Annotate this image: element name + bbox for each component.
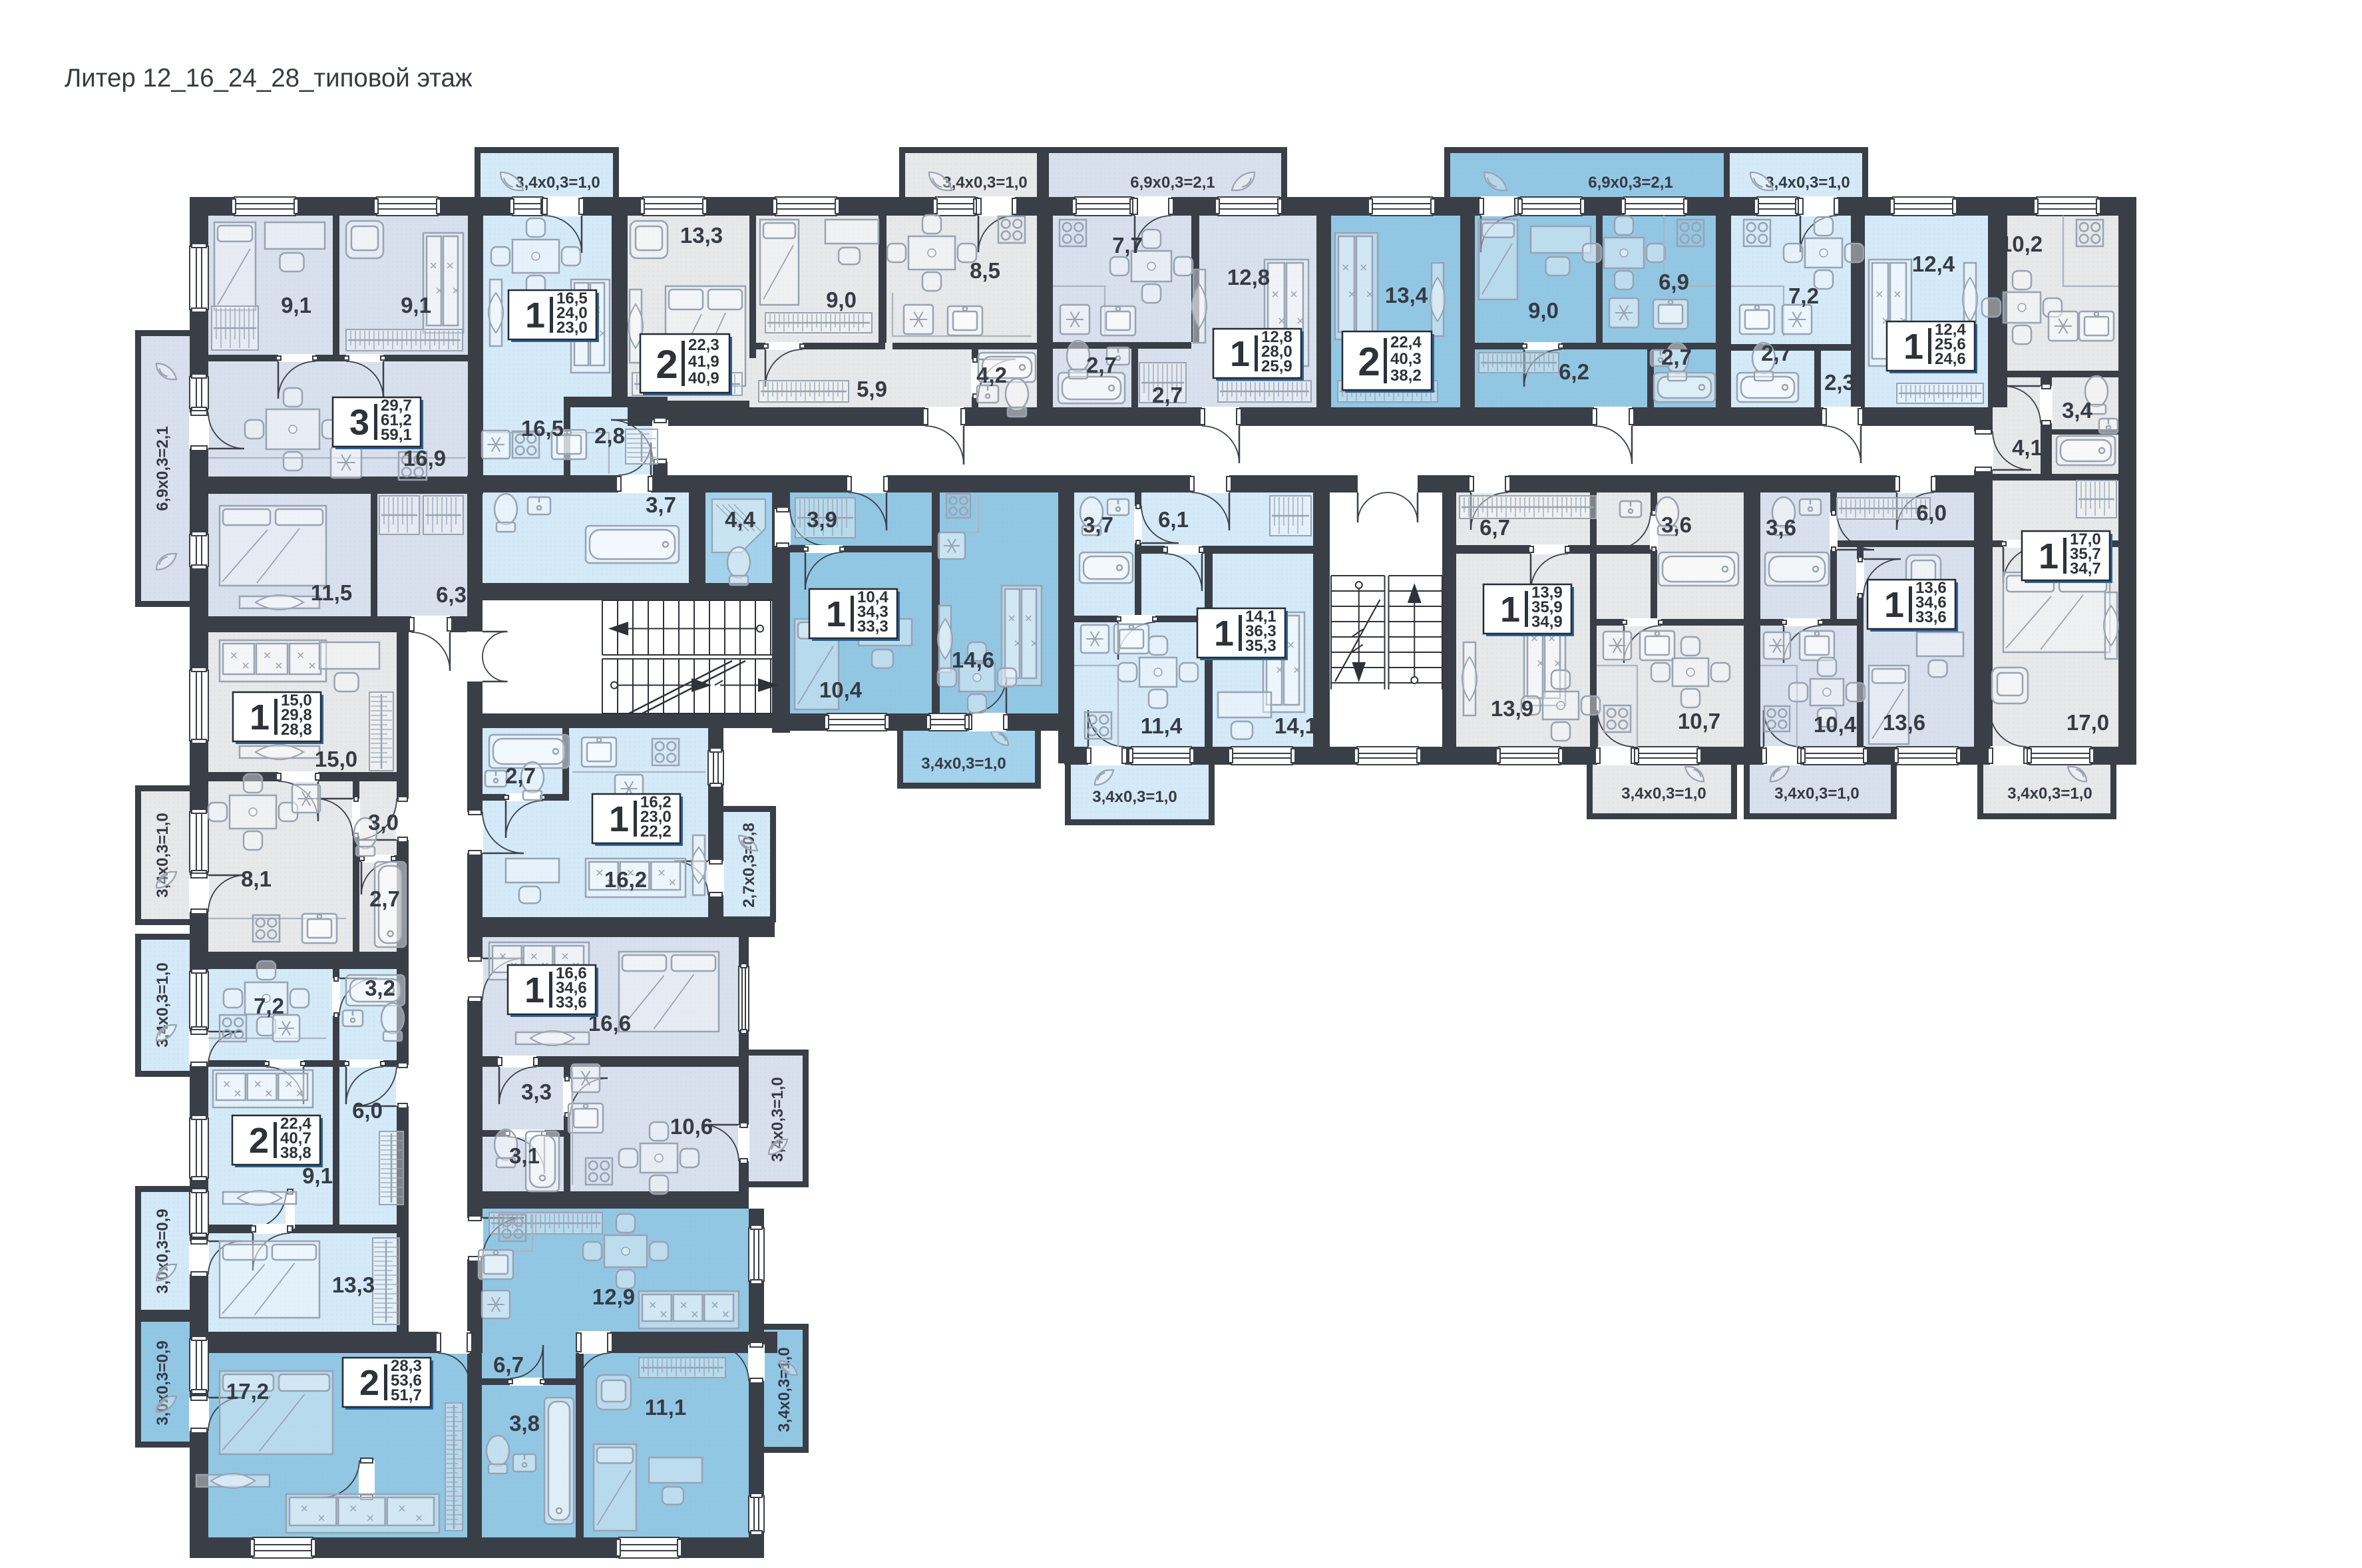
svg-text:10,4: 10,4 xyxy=(1814,712,1857,737)
svg-text:1: 1 xyxy=(524,970,544,1010)
svg-text:2: 2 xyxy=(656,342,678,387)
svg-text:9,1: 9,1 xyxy=(401,293,431,317)
svg-text:1: 1 xyxy=(1884,585,1904,625)
svg-text:34,9: 34,9 xyxy=(1531,613,1563,631)
svg-text:1: 1 xyxy=(1214,614,1234,654)
svg-text:3,4х0,3=1,0: 3,4х0,3=1,0 xyxy=(775,1347,793,1432)
svg-text:33,6: 33,6 xyxy=(1915,608,1947,626)
svg-text:38,2: 38,2 xyxy=(1390,367,1422,385)
svg-text:1: 1 xyxy=(1230,334,1250,374)
svg-text:2: 2 xyxy=(359,1363,379,1403)
svg-text:9,0: 9,0 xyxy=(1528,298,1559,323)
svg-text:6,7: 6,7 xyxy=(1479,515,1510,540)
svg-text:16,5: 16,5 xyxy=(521,416,564,441)
svg-text:10,6: 10,6 xyxy=(670,1114,713,1139)
svg-text:35,3: 35,3 xyxy=(1245,637,1277,655)
svg-text:11,5: 11,5 xyxy=(311,580,352,605)
svg-text:25,9: 25,9 xyxy=(1261,357,1292,375)
svg-text:1: 1 xyxy=(250,697,270,737)
svg-text:6,2: 6,2 xyxy=(1559,359,1589,384)
svg-text:22,3: 22,3 xyxy=(688,336,719,354)
svg-text:2: 2 xyxy=(249,1121,269,1161)
svg-text:6,7: 6,7 xyxy=(493,1352,524,1377)
svg-text:3,6: 3,6 xyxy=(1766,515,1796,540)
svg-text:14,6: 14,6 xyxy=(952,648,994,672)
svg-text:14,1: 14,1 xyxy=(1275,713,1317,738)
svg-text:3,4х0,3=1,0: 3,4х0,3=1,0 xyxy=(1092,788,1177,806)
svg-text:8,5: 8,5 xyxy=(970,258,1000,283)
svg-text:Литер 12_16_24_28_типовой этаж: Литер 12_16_24_28_типовой этаж xyxy=(65,64,473,93)
svg-text:13,3: 13,3 xyxy=(332,1273,375,1297)
svg-text:16,2: 16,2 xyxy=(604,867,647,892)
svg-text:2: 2 xyxy=(1358,339,1380,384)
svg-text:13,4: 13,4 xyxy=(1385,283,1428,307)
svg-text:17,2: 17,2 xyxy=(226,1379,269,1404)
svg-text:1: 1 xyxy=(2039,536,2059,576)
svg-text:6,9х0,3=2,1: 6,9х0,3=2,1 xyxy=(154,426,172,510)
svg-text:38,8: 38,8 xyxy=(280,1144,311,1162)
svg-text:3,4х0,3=1,0: 3,4х0,3=1,0 xyxy=(942,174,1027,192)
svg-text:12,8: 12,8 xyxy=(1227,265,1270,290)
svg-text:33,3: 33,3 xyxy=(857,618,888,636)
svg-text:24,6: 24,6 xyxy=(1935,350,1966,368)
svg-text:2,7: 2,7 xyxy=(1661,345,1692,369)
svg-text:6,0: 6,0 xyxy=(352,1098,383,1123)
svg-text:13,6: 13,6 xyxy=(1883,710,1925,735)
svg-text:3,9: 3,9 xyxy=(807,507,837,532)
svg-text:3,8: 3,8 xyxy=(509,1411,540,1436)
svg-text:3: 3 xyxy=(349,403,369,443)
svg-text:41,9: 41,9 xyxy=(688,353,719,371)
svg-text:3,2: 3,2 xyxy=(365,976,395,1000)
svg-text:34,7: 34,7 xyxy=(2070,560,2101,578)
svg-text:16,9: 16,9 xyxy=(403,446,446,471)
svg-text:3,4х0,3=1,0: 3,4х0,3=1,0 xyxy=(921,755,1006,773)
svg-text:6,0: 6,0 xyxy=(1916,500,1947,525)
svg-text:11,1: 11,1 xyxy=(645,1395,686,1420)
svg-text:3,4х0,3=1,0: 3,4х0,3=1,0 xyxy=(515,174,600,192)
svg-text:28,8: 28,8 xyxy=(281,721,312,739)
svg-text:6,9х0,3=2,1: 6,9х0,3=2,1 xyxy=(1130,174,1215,192)
svg-text:40,3: 40,3 xyxy=(1390,350,1422,368)
svg-text:1: 1 xyxy=(1903,327,1923,367)
svg-text:2,7: 2,7 xyxy=(1086,353,1117,377)
svg-text:6,9х0,3=2,1: 6,9х0,3=2,1 xyxy=(1588,174,1673,192)
svg-text:13,3: 13,3 xyxy=(680,223,723,248)
svg-text:3,4х0,3=1,0: 3,4х0,3=1,0 xyxy=(1774,785,1859,803)
svg-text:3,1: 3,1 xyxy=(509,1143,540,1168)
svg-text:3,4х0,3=1,0: 3,4х0,3=1,0 xyxy=(2007,785,2092,803)
svg-text:6,1: 6,1 xyxy=(1158,507,1189,532)
svg-text:9,0: 9,0 xyxy=(826,288,857,312)
svg-text:23,0: 23,0 xyxy=(556,319,588,337)
svg-text:10,7: 10,7 xyxy=(1678,709,1720,733)
svg-text:22,4: 22,4 xyxy=(1390,333,1422,351)
svg-text:2,3: 2,3 xyxy=(1824,370,1855,395)
svg-text:12,4: 12,4 xyxy=(1912,252,1955,276)
svg-text:3,4х0,3=1,0: 3,4х0,3=1,0 xyxy=(1765,174,1850,192)
svg-text:9,1: 9,1 xyxy=(281,293,311,317)
svg-text:2,8: 2,8 xyxy=(594,423,625,448)
svg-text:1: 1 xyxy=(525,295,545,335)
svg-text:7,2: 7,2 xyxy=(254,994,284,1018)
svg-text:4,4: 4,4 xyxy=(725,507,756,532)
svg-text:11,4: 11,4 xyxy=(1141,713,1183,738)
svg-text:33,6: 33,6 xyxy=(556,994,587,1012)
svg-text:59,1: 59,1 xyxy=(381,426,412,444)
svg-text:8,1: 8,1 xyxy=(241,867,272,891)
svg-text:3,7: 3,7 xyxy=(1083,512,1113,537)
svg-text:1: 1 xyxy=(1500,590,1520,630)
svg-text:17,0: 17,0 xyxy=(2067,710,2109,735)
svg-text:1: 1 xyxy=(609,799,629,839)
svg-text:10,4: 10,4 xyxy=(819,678,863,702)
svg-text:2,7: 2,7 xyxy=(505,763,536,788)
svg-text:3,0: 3,0 xyxy=(368,810,399,835)
svg-text:51,7: 51,7 xyxy=(391,1386,422,1404)
svg-text:2,7: 2,7 xyxy=(1761,341,1792,365)
svg-text:22,2: 22,2 xyxy=(640,823,672,841)
svg-text:2,7: 2,7 xyxy=(1152,383,1183,407)
svg-text:7,2: 7,2 xyxy=(1788,284,1819,308)
svg-text:1: 1 xyxy=(826,594,846,634)
svg-text:5,9: 5,9 xyxy=(857,377,887,401)
svg-text:6,3: 6,3 xyxy=(436,582,467,607)
svg-text:6,9: 6,9 xyxy=(1659,270,1689,294)
svg-text:40,9: 40,9 xyxy=(688,369,719,387)
svg-text:10,2: 10,2 xyxy=(2000,232,2043,256)
svg-text:12,9: 12,9 xyxy=(592,1284,635,1309)
svg-text:3,7: 3,7 xyxy=(646,492,676,517)
svg-text:13,9: 13,9 xyxy=(1491,696,1533,721)
svg-text:7,7: 7,7 xyxy=(1112,233,1143,258)
svg-text:3,3: 3,3 xyxy=(521,1079,552,1104)
svg-text:4,1: 4,1 xyxy=(2012,435,2043,460)
svg-text:3,4х0,3=1,0: 3,4х0,3=1,0 xyxy=(1621,785,1706,803)
svg-text:2,7: 2,7 xyxy=(369,886,400,911)
svg-text:3,6: 3,6 xyxy=(1661,512,1692,537)
svg-text:4,2: 4,2 xyxy=(976,363,1007,387)
svg-text:3,4: 3,4 xyxy=(2062,398,2093,423)
svg-text:15,0: 15,0 xyxy=(315,747,357,771)
